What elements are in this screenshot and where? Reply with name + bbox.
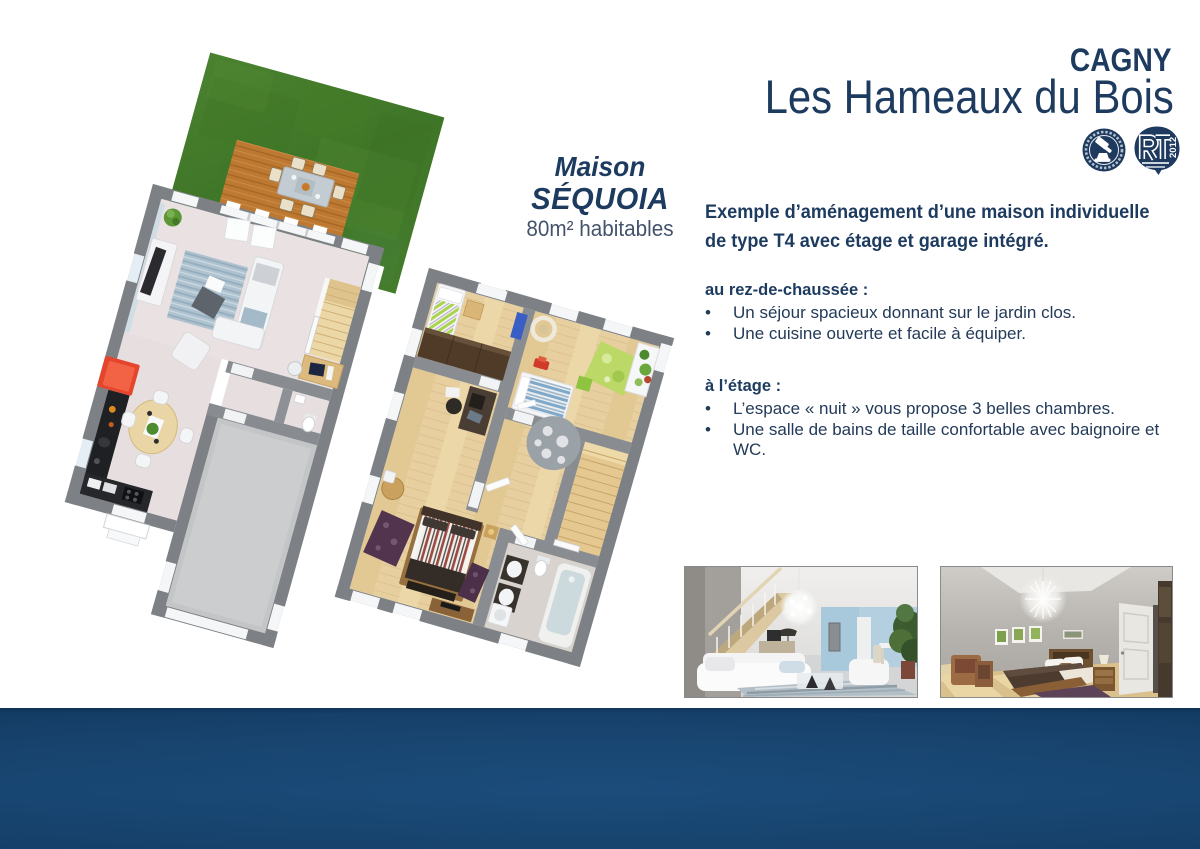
- svg-text:2012: 2012: [1168, 137, 1179, 158]
